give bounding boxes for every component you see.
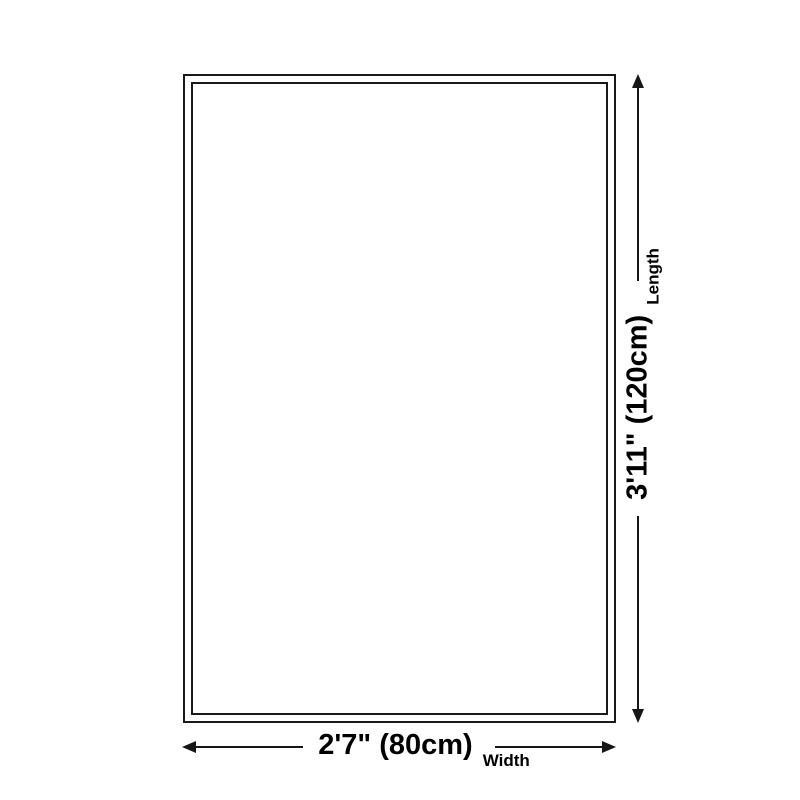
- arrow-down-icon: [632, 709, 644, 723]
- product-outline-outer: [183, 74, 616, 723]
- width-dimension-line-right: [495, 746, 602, 748]
- width-label: Width: [483, 752, 530, 769]
- arrow-right-icon: [602, 741, 616, 753]
- length-dimension: 3'11" (120cm) Length: [627, 74, 649, 723]
- length-dimension-line-top: [637, 88, 639, 281]
- product-outline-inner: [191, 82, 608, 715]
- width-label-box: 2'7" (80cm) Width: [318, 731, 480, 760]
- width-dimension-line-left: [196, 746, 303, 748]
- arrow-up-icon: [632, 74, 644, 88]
- length-label: Length: [645, 248, 662, 305]
- length-dimension-line-bottom: [637, 516, 639, 709]
- length-label-box: 3'11" (120cm) Length: [627, 281, 649, 516]
- product-size-diagram: 3'11" (120cm) Length 2'7" (80cm) Width: [0, 0, 800, 800]
- length-value: 3'11" (120cm): [624, 314, 653, 499]
- arrow-left-icon: [182, 741, 196, 753]
- width-dimension: 2'7" (80cm) Width: [182, 736, 616, 758]
- width-value: 2'7" (80cm): [318, 731, 472, 760]
